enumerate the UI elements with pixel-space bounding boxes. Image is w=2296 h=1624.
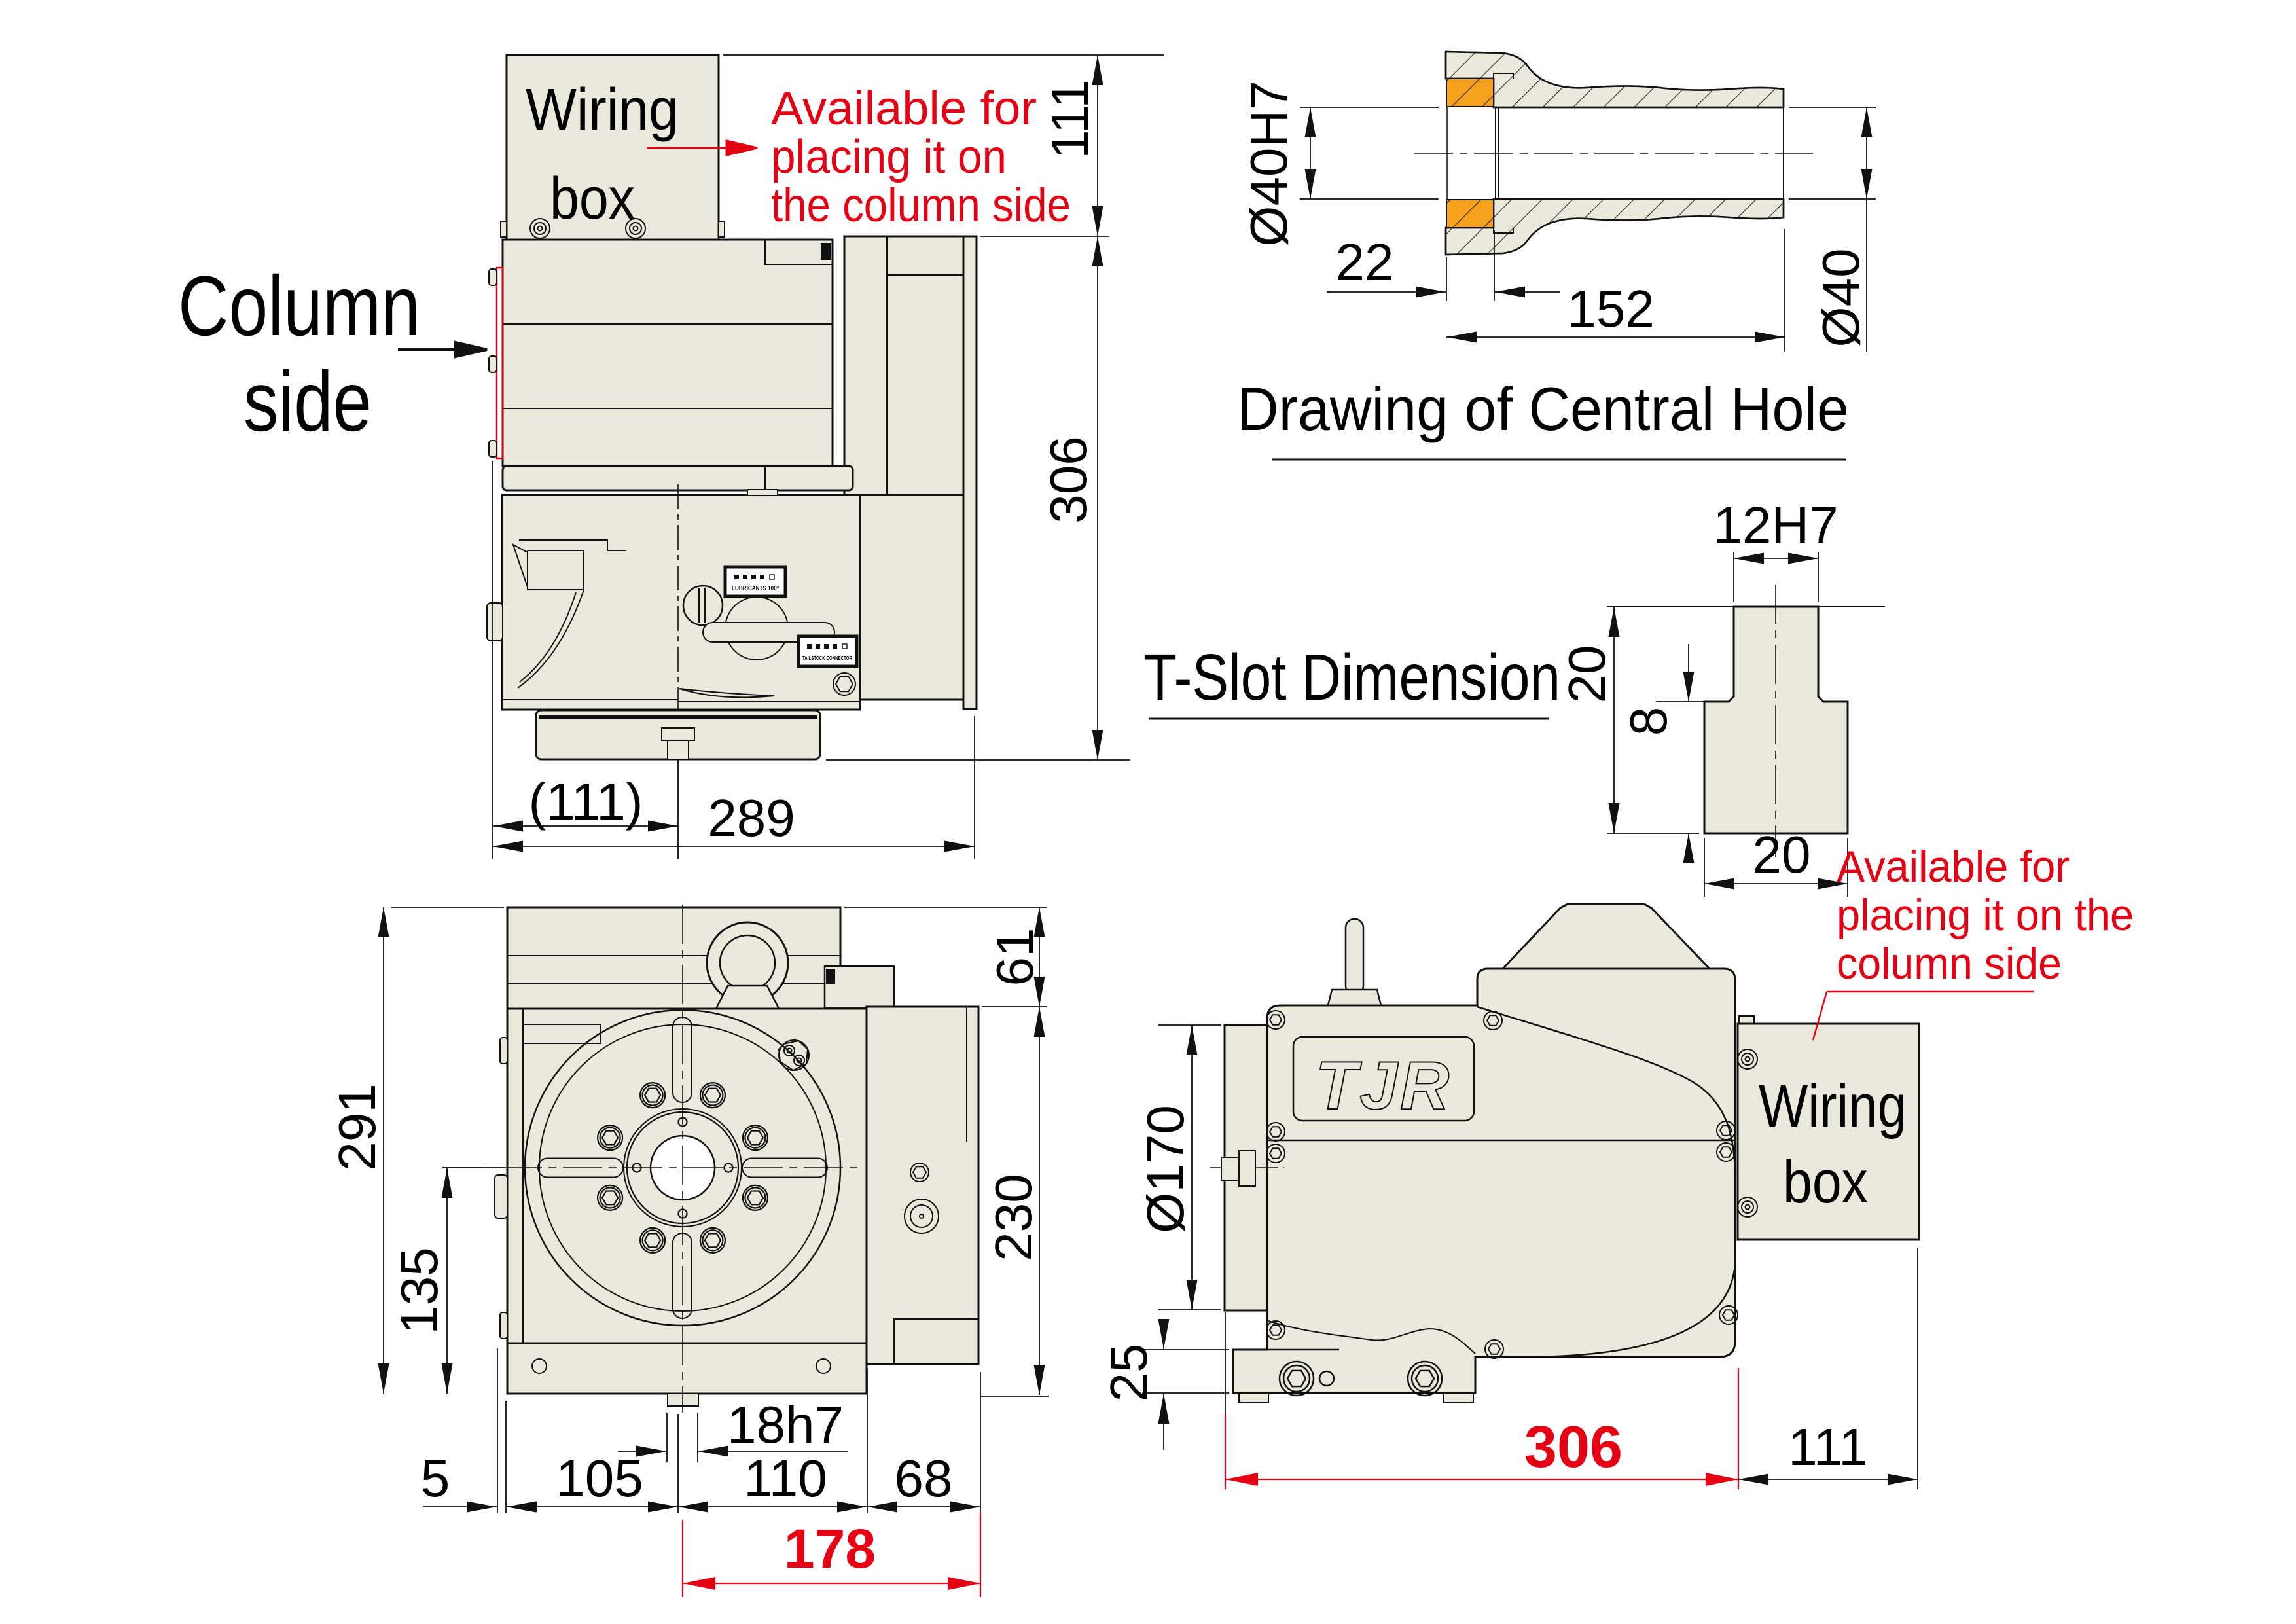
svg-text:Wiring: Wiring <box>1759 1073 1907 1140</box>
svg-text:Available for: Available for <box>771 82 1037 135</box>
svg-text:178: 178 <box>784 1518 876 1579</box>
svg-text:289: 289 <box>708 789 795 847</box>
svg-text:side: side <box>243 353 372 449</box>
svg-text:152: 152 <box>1567 280 1654 338</box>
svg-text:8: 8 <box>1619 707 1677 736</box>
svg-text:111: 111 <box>1788 1418 1868 1476</box>
svg-text:110: 110 <box>744 1449 827 1507</box>
svg-text:(111): (111) <box>529 772 643 831</box>
svg-text:placing it on the: placing it on the <box>1837 890 2134 940</box>
svg-text:Available for: Available for <box>1837 842 2070 892</box>
svg-text:111: 111 <box>1041 79 1099 159</box>
svg-text:20: 20 <box>1558 645 1616 704</box>
svg-text:placing it on: placing it on <box>771 131 1007 183</box>
svg-text:Column: Column <box>178 258 420 353</box>
svg-text:12H7: 12H7 <box>1713 496 1838 554</box>
svg-text:T-Slot Dimension: T-Slot Dimension <box>1143 641 1560 714</box>
svg-text:TAILSTOCK CONNECTOR: TAILSTOCK CONNECTOR <box>802 655 852 661</box>
svg-text:TJR: TJR <box>1316 1048 1452 1124</box>
svg-text:306: 306 <box>1524 1415 1623 1480</box>
svg-text:Ø170: Ø170 <box>1136 1105 1194 1233</box>
svg-text:105: 105 <box>556 1449 643 1507</box>
svg-text:230: 230 <box>984 1174 1043 1261</box>
svg-text:135: 135 <box>390 1247 448 1334</box>
svg-text:20: 20 <box>1753 825 1811 884</box>
svg-text:18h7: 18h7 <box>727 1396 844 1454</box>
svg-text:25: 25 <box>1100 1344 1158 1402</box>
svg-text:291: 291 <box>328 1083 386 1170</box>
svg-text:Ø40: Ø40 <box>1812 248 1870 347</box>
svg-text:68: 68 <box>895 1449 953 1507</box>
svg-text:61: 61 <box>986 928 1044 986</box>
svg-text:5: 5 <box>421 1449 450 1507</box>
svg-text:306: 306 <box>1039 436 1098 523</box>
svg-text:Drawing of Central Hole: Drawing of Central Hole <box>1237 374 1849 443</box>
svg-text:box: box <box>550 166 635 232</box>
svg-text:22: 22 <box>1336 233 1394 291</box>
svg-text:column side: column side <box>1837 939 2062 988</box>
svg-text:Wiring: Wiring <box>526 77 679 143</box>
svg-text:the column side: the column side <box>771 179 1071 232</box>
svg-text:Ø40H7: Ø40H7 <box>1240 81 1298 246</box>
svg-text:LUBRICANTS 100°: LUBRICANTS 100° <box>732 585 779 592</box>
svg-text:box: box <box>1783 1149 1868 1216</box>
